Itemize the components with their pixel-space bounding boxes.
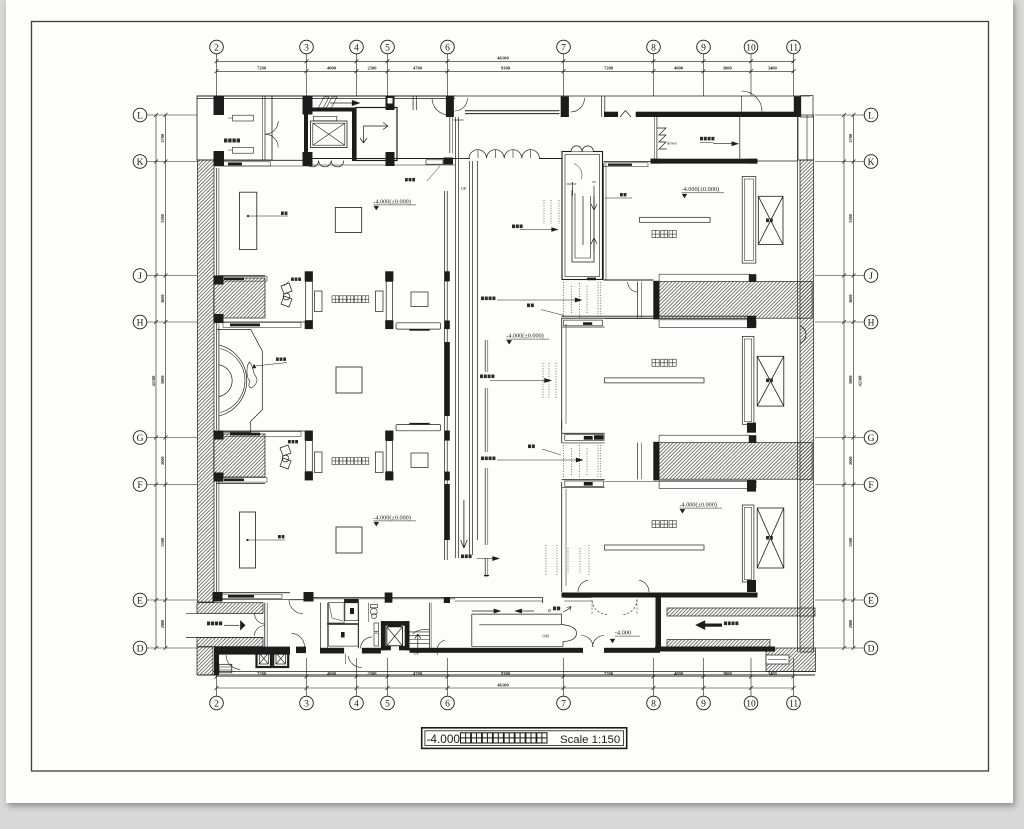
svg-text:5300: 5300 [160,538,165,547]
svg-text:9300: 9300 [501,66,511,71]
svg-text:-4.000(±0.000): -4.000(±0.000) [373,514,410,521]
svg-text:2900: 2900 [160,620,165,629]
svg-text:9: 9 [701,700,706,710]
svg-text:5300: 5300 [848,538,853,547]
svg-text:5300: 5300 [848,214,853,223]
svg-text:2: 2 [214,44,219,54]
svg-text:6: 6 [445,44,450,54]
svg-text:4000: 4000 [674,66,684,71]
svg-text:46100: 46100 [497,683,509,688]
svg-text:H: H [868,318,875,328]
svg-text:46100: 46100 [497,56,509,61]
svg-text:3400: 3400 [768,66,778,71]
svg-text:10: 10 [746,700,756,710]
svg-text:L: L [137,111,143,121]
svg-text:5000: 5000 [160,375,165,384]
svg-text:H: H [137,318,144,328]
svg-text:42100: 42100 [151,376,156,387]
svg-text:4700: 4700 [413,66,423,71]
svg-text:2600: 2600 [848,456,853,465]
svg-text:10M: 10M [542,635,550,639]
svg-text:D: D [137,644,144,654]
svg-text:3: 3 [304,700,309,710]
svg-text:E: E [137,596,143,606]
svg-text:4: 4 [354,700,359,710]
svg-text:6: 6 [445,700,450,710]
svg-text:4: 4 [354,44,359,54]
svg-text:5300: 5300 [160,214,165,223]
svg-text:5: 5 [385,700,390,710]
svg-text:2: 2 [214,700,219,710]
svg-text:UP: UP [414,651,420,656]
svg-text:3600: 3600 [160,294,165,303]
svg-text:3600: 3600 [848,294,853,303]
svg-text:UP: UP [592,180,596,184]
svg-text:-4.000(±0.000): -4.000(±0.000) [680,502,717,509]
svg-text:7200: 7200 [257,66,267,71]
svg-text:2900: 2900 [848,620,853,629]
svg-text:K: K [137,158,144,168]
svg-text:7: 7 [561,44,566,54]
svg-text:L: L [868,111,874,121]
svg-text:8: 8 [651,44,656,54]
svg-text:UP: UP [461,186,467,191]
svg-text:E: E [868,596,874,606]
svg-text:D: D [868,644,875,654]
svg-text:11: 11 [789,44,798,54]
svg-text:2500: 2500 [368,66,378,71]
svg-text:-4.000(±0.000): -4.000(±0.000) [682,186,719,193]
svg-text:K: K [868,158,875,168]
svg-text:J: J [869,272,873,282]
svg-text:J: J [138,272,142,282]
svg-text:Scale 1:150: Scale 1:150 [560,734,620,746]
svg-text:3000: 3000 [723,66,733,71]
svg-text:7200: 7200 [604,66,614,71]
svg-text:9: 9 [701,44,706,54]
svg-text:down: down [667,141,678,146]
svg-text:2600: 2600 [160,456,165,465]
svg-text:11: 11 [789,700,798,710]
svg-text:G: G [868,434,875,444]
svg-text:5000: 5000 [848,375,853,384]
svg-text:DOWN: DOWN [567,182,578,186]
svg-text:42100: 42100 [858,376,863,387]
svg-text:5: 5 [385,44,390,54]
svg-text:4000: 4000 [327,66,337,71]
svg-text:2700: 2700 [160,134,165,143]
svg-text:7: 7 [561,700,566,710]
svg-text:-4.000: -4.000 [615,630,632,637]
svg-text:-4.000(±0.000): -4.000(±0.000) [373,198,410,205]
svg-text:F: F [137,481,142,491]
svg-text:DOWN: DOWN [454,118,465,122]
svg-text:2700: 2700 [848,134,853,143]
svg-text:10: 10 [746,44,756,54]
svg-text:-4.000: -4.000 [427,732,461,746]
svg-text:8: 8 [651,700,656,710]
svg-text:F: F [868,481,873,491]
svg-text:G: G [137,434,144,444]
svg-text:-4.000(±0.000): -4.000(±0.000) [506,333,543,340]
svg-text:3: 3 [304,44,309,54]
